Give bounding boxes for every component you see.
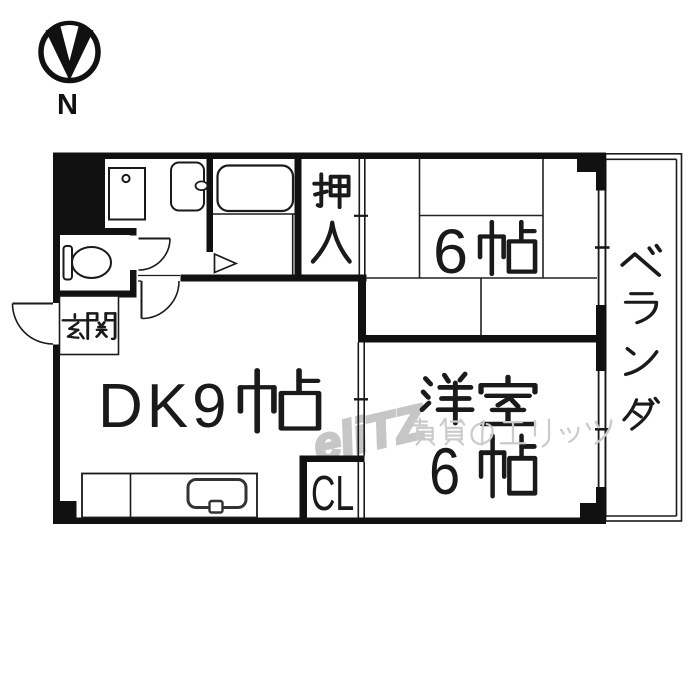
svg-text:6: 6 bbox=[429, 435, 460, 508]
svg-text:DK9: DK9 bbox=[98, 372, 231, 441]
svg-text:6: 6 bbox=[433, 217, 468, 287]
svg-text:CL: CL bbox=[311, 466, 354, 521]
svg-text:N: N bbox=[57, 89, 78, 121]
